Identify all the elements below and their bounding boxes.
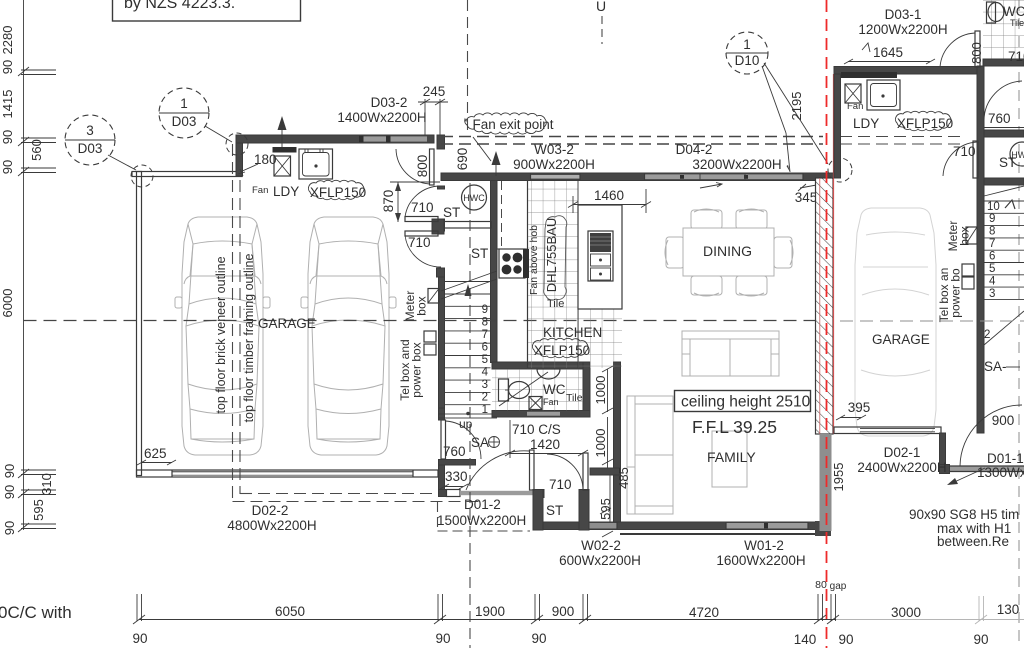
svg-text:ST: ST: [546, 503, 563, 518]
svg-text:9: 9: [482, 304, 488, 316]
svg-text:1400Wx2200H: 1400Wx2200H: [337, 110, 426, 125]
svg-text:ST: ST: [999, 155, 1016, 170]
svg-text:F.F.L 39.25: F.F.L 39.25: [692, 417, 777, 437]
svg-text:DINING: DINING: [703, 243, 752, 259]
svg-text:1900: 1900: [475, 604, 505, 619]
svg-text:90: 90: [0, 160, 15, 174]
svg-text:90: 90: [531, 631, 546, 646]
svg-text:7: 7: [482, 329, 488, 341]
svg-text:4720: 4720: [689, 605, 719, 620]
svg-text:XFLP150: XFLP150: [534, 343, 590, 358]
svg-text:5: 5: [989, 263, 995, 275]
svg-text:power bo: power bo: [949, 268, 963, 318]
svg-text:900: 900: [992, 413, 1015, 428]
svg-text:1: 1: [180, 96, 188, 111]
svg-text:power box: power box: [410, 342, 424, 397]
svg-text:WC: WC: [543, 382, 566, 397]
svg-text:Fan exit point: Fan exit point: [472, 117, 553, 132]
svg-text:3200Wx2200H: 3200Wx2200H: [692, 157, 781, 172]
svg-text:Fan: Fan: [847, 101, 863, 112]
svg-text:90: 90: [0, 60, 15, 74]
svg-text:6000: 6000: [0, 289, 15, 318]
svg-text:560: 560: [29, 139, 44, 161]
svg-text:2: 2: [984, 329, 990, 341]
svg-text:HWC: HWC: [463, 193, 485, 203]
svg-text:90x90 SG8 H5 tim: 90x90 SG8 H5 tim: [909, 507, 1019, 522]
svg-text:U: U: [596, 0, 606, 14]
svg-text:2280: 2280: [0, 26, 15, 55]
svg-text:GARAGE: GARAGE: [258, 316, 316, 331]
svg-text:Fan above hob: Fan above hob: [528, 225, 540, 295]
svg-text:4800Wx2200H: 4800Wx2200H: [227, 518, 316, 533]
svg-text:1600Wx2200H: 1600Wx2200H: [716, 553, 805, 568]
svg-text:ST: ST: [471, 246, 488, 261]
svg-text:W03-2: W03-2: [534, 142, 574, 157]
svg-text:1: 1: [743, 37, 751, 52]
svg-text:3: 3: [482, 379, 488, 391]
svg-text:8: 8: [482, 317, 488, 329]
svg-text:9: 9: [989, 213, 995, 225]
svg-text:3: 3: [86, 123, 94, 138]
svg-text:1955: 1955: [831, 463, 846, 492]
svg-text:2400Wx2200H: 2400Wx2200H: [857, 460, 946, 475]
svg-text:90: 90: [2, 464, 17, 478]
svg-text:395: 395: [848, 400, 871, 415]
svg-text:D03-2: D03-2: [371, 95, 408, 110]
svg-text:Tile: Tile: [1010, 18, 1024, 28]
svg-text:D02-1: D02-1: [884, 445, 921, 460]
svg-text:D03: D03: [172, 114, 197, 129]
svg-text:ceiling height 2510: ceiling height 2510: [681, 394, 811, 411]
svg-text:1460: 1460: [594, 188, 624, 203]
svg-text:1300Wx2200H: 1300Wx2200H: [977, 465, 1024, 480]
svg-text:6050: 6050: [275, 604, 305, 619]
svg-text:box: box: [415, 296, 429, 315]
svg-text:box: box: [958, 226, 972, 245]
svg-text:800: 800: [415, 155, 430, 178]
svg-text:6: 6: [989, 251, 995, 263]
svg-text:ST: ST: [443, 205, 460, 220]
svg-text:710: 710: [549, 477, 572, 492]
svg-text:XFLP150: XFLP150: [310, 185, 366, 200]
svg-text:W01-2: W01-2: [744, 538, 784, 553]
svg-text:KITCHEN: KITCHEN: [543, 325, 602, 340]
svg-text:8: 8: [989, 226, 995, 238]
svg-text:90: 90: [973, 632, 988, 647]
svg-text:870: 870: [381, 190, 396, 213]
svg-text:90: 90: [838, 632, 853, 647]
svg-text:1500Wx2200H: 1500Wx2200H: [437, 513, 526, 528]
svg-text:D04-2: D04-2: [676, 142, 713, 157]
svg-text:FAMILY: FAMILY: [707, 449, 756, 465]
svg-text:Fan: Fan: [252, 185, 268, 196]
svg-text:D03: D03: [78, 141, 103, 156]
svg-text:by NZS 4223.3.: by NZS 4223.3.: [124, 0, 235, 12]
svg-text:1645: 1645: [873, 45, 903, 60]
svg-text:1415: 1415: [0, 90, 15, 119]
svg-text:345: 345: [795, 190, 818, 205]
svg-text:80: 80: [815, 579, 827, 591]
svg-text:690: 690: [455, 148, 470, 171]
svg-text:gap: gap: [830, 581, 847, 592]
svg-text:245: 245: [423, 84, 446, 99]
svg-text:5: 5: [482, 354, 488, 366]
svg-text:4: 4: [989, 276, 996, 288]
svg-text:90: 90: [2, 521, 17, 535]
svg-text:90: 90: [435, 631, 450, 646]
svg-text:4: 4: [482, 367, 489, 379]
svg-text:WC: WC: [1003, 4, 1024, 19]
svg-text:625: 625: [144, 446, 167, 461]
svg-text:W02-2: W02-2: [581, 538, 621, 553]
svg-text:SA-: SA-: [984, 359, 1007, 374]
svg-text:90: 90: [2, 485, 17, 499]
svg-text:Tile: Tile: [547, 298, 564, 310]
svg-text:LDY: LDY: [273, 184, 299, 199]
svg-text:710: 710: [408, 235, 431, 250]
svg-text:1000: 1000: [593, 429, 608, 458]
svg-text:485: 485: [616, 467, 631, 489]
svg-text:GARAGE: GARAGE: [872, 332, 930, 347]
svg-text:900Wx2200H: 900Wx2200H: [513, 157, 595, 172]
svg-text:D10: D10: [735, 53, 760, 68]
svg-text:140: 140: [794, 632, 817, 647]
svg-text:710 C/S: 710 C/S: [512, 422, 561, 437]
svg-text:90: 90: [132, 631, 147, 646]
svg-text:D01-2: D01-2: [464, 497, 501, 512]
svg-text:3: 3: [989, 288, 995, 300]
svg-text:Fan: Fan: [543, 397, 559, 407]
svg-text:top floor brick veneer outline: top floor brick veneer outline: [214, 256, 228, 413]
svg-text:800: 800: [969, 42, 984, 64]
svg-text:710: 710: [411, 200, 434, 215]
svg-text:2: 2: [482, 392, 488, 404]
svg-text:595: 595: [598, 498, 613, 520]
svg-text:10: 10: [987, 201, 1000, 213]
svg-text:2195: 2195: [789, 92, 804, 121]
svg-text:130: 130: [997, 602, 1020, 617]
svg-text:595: 595: [31, 499, 46, 521]
svg-text:SA: SA: [471, 435, 489, 450]
svg-text:7: 7: [989, 238, 995, 250]
svg-text:D03-1: D03-1: [885, 7, 922, 22]
svg-text:D02-2: D02-2: [252, 503, 289, 518]
svg-text:XFLP150: XFLP150: [897, 116, 953, 131]
svg-text:Tile: Tile: [566, 392, 583, 404]
svg-text:330: 330: [445, 469, 468, 484]
svg-text:up: up: [459, 417, 473, 431]
svg-text:between.Re: between.Re: [937, 534, 1009, 549]
svg-text:710: 710: [1008, 49, 1024, 64]
svg-text:6: 6: [482, 342, 488, 354]
svg-text:900: 900: [552, 604, 575, 619]
svg-text:top floor timber framing outli: top floor timber framing outline: [242, 254, 256, 423]
svg-text:DHL755BAU: DHL755BAU: [544, 218, 559, 292]
svg-text:3000: 3000: [891, 605, 921, 620]
svg-text:D01-1: D01-1: [987, 451, 1024, 466]
svg-text:600Wx2200H: 600Wx2200H: [559, 553, 641, 568]
svg-text:0C/C with: 0C/C with: [0, 603, 72, 622]
svg-text:90: 90: [0, 130, 15, 144]
svg-text:1420: 1420: [530, 437, 560, 452]
svg-text:760: 760: [443, 444, 466, 459]
svg-text:760: 760: [988, 111, 1011, 126]
svg-text:1000: 1000: [593, 376, 608, 405]
svg-text:310: 310: [39, 473, 54, 495]
svg-text:1: 1: [482, 404, 488, 416]
svg-text:1200Wx2200H: 1200Wx2200H: [858, 22, 947, 37]
svg-text:LDY: LDY: [853, 116, 879, 131]
svg-text:710: 710: [953, 144, 976, 159]
